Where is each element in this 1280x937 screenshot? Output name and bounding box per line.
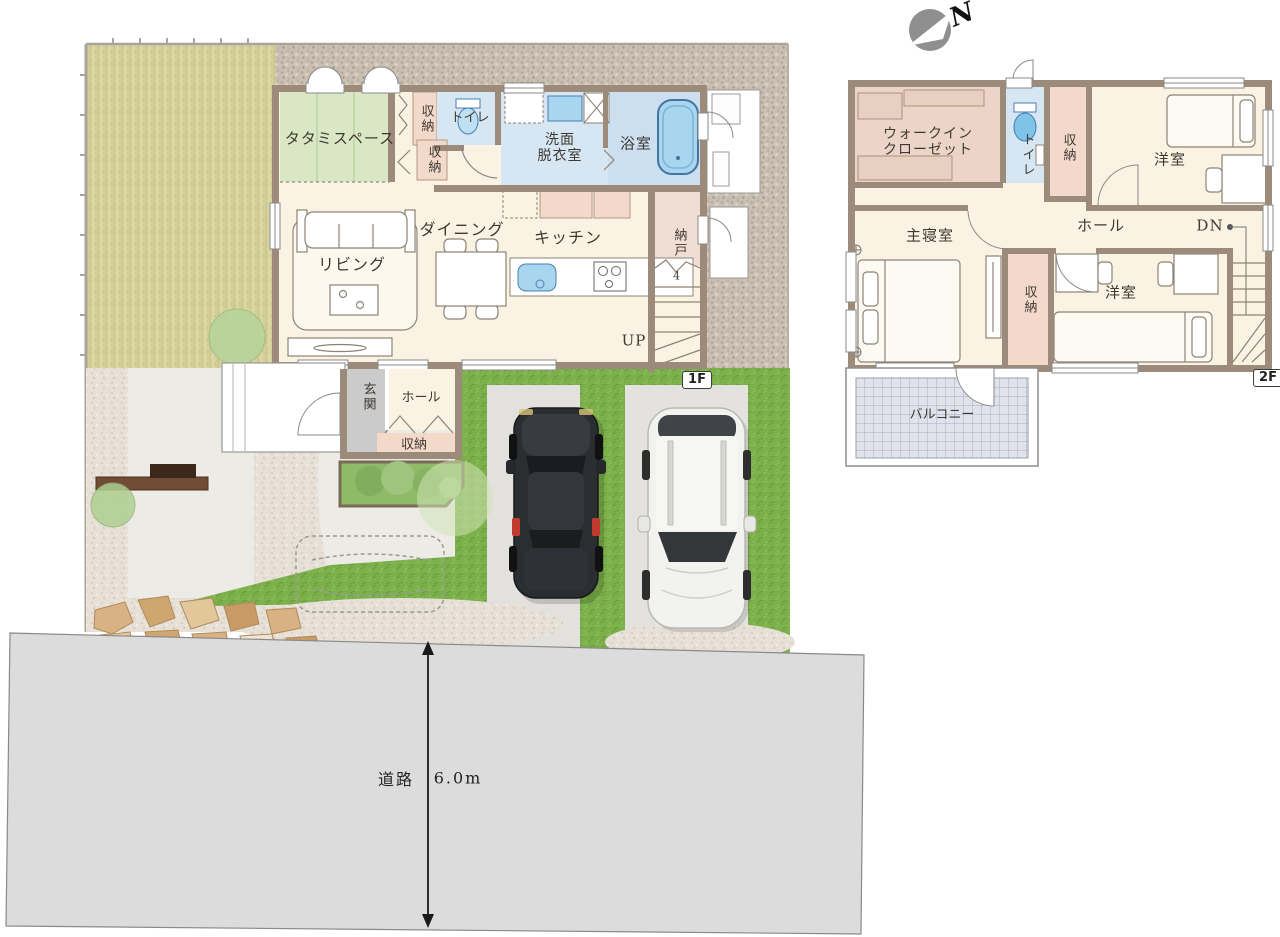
- label-balcony: バルコニー: [910, 409, 975, 424]
- label-up: UP: [622, 332, 647, 349]
- car-white: [638, 408, 756, 632]
- label-dn: DN: [1196, 217, 1223, 234]
- label-toilet-1f: トイレ: [450, 112, 489, 127]
- label-dining: ダイニング: [419, 221, 504, 239]
- floorplan-page: タタミスペース 収納 トイレ 収納 洗面 脱衣室 浴室 リビング ダイニング キ…: [0, 0, 1280, 937]
- label-washroom-line1: 洗面: [538, 132, 583, 148]
- washroom-fixtures: [505, 93, 609, 123]
- label-toilet-2f: トイレ: [1019, 133, 1034, 178]
- label-hall-1f: ホール: [401, 392, 440, 407]
- label-washroom: 洗面 脱衣室: [538, 132, 583, 164]
- compass-icon: [908, 9, 952, 51]
- label-entrance-storage: 収納: [401, 439, 427, 454]
- tree-canopy-nw: [209, 309, 265, 365]
- floor2-plan: [846, 60, 1273, 466]
- bathtub: [658, 100, 698, 174]
- label-hall-2f: ホール: [1077, 217, 1125, 234]
- label-bathroom: 浴室: [620, 135, 652, 152]
- label-bedroom-top: 洋室: [1154, 151, 1186, 168]
- label-road-width: 6.0m: [434, 769, 483, 788]
- label-kitchen: キッチン: [534, 229, 602, 247]
- label-washroom-line2: 脱衣室: [538, 148, 583, 164]
- label-stair-count: 4: [673, 271, 681, 284]
- label-walkin-line2: クローゼット: [883, 142, 973, 158]
- label-storage-2f-top: 収納: [1060, 133, 1075, 163]
- label-living: リビング: [318, 256, 386, 274]
- label-storeroom: 納戸: [671, 228, 686, 258]
- label-road-name: 道路: [378, 766, 414, 790]
- label-storage-2f-mid: 収納: [1021, 285, 1036, 315]
- car-black: [506, 408, 606, 604]
- label-walkin-closet: ウォークイン クローゼット: [883, 126, 973, 158]
- label-walkin-line1: ウォークイン: [883, 126, 973, 142]
- label-master-bedroom: 主寝室: [906, 227, 954, 244]
- floor2-badge: 2F: [1253, 369, 1280, 387]
- label-bedroom-bottom: 洋室: [1105, 284, 1137, 301]
- tree-canopy-west: [91, 483, 135, 527]
- label-storage-top-1f: 収納: [418, 104, 433, 134]
- floor1-badge: 1F: [682, 371, 712, 389]
- label-entrance: 玄関: [360, 382, 375, 412]
- label-tatami-space: タタミスペース: [285, 130, 395, 147]
- label-storage-mid-1f: 収納: [425, 145, 440, 175]
